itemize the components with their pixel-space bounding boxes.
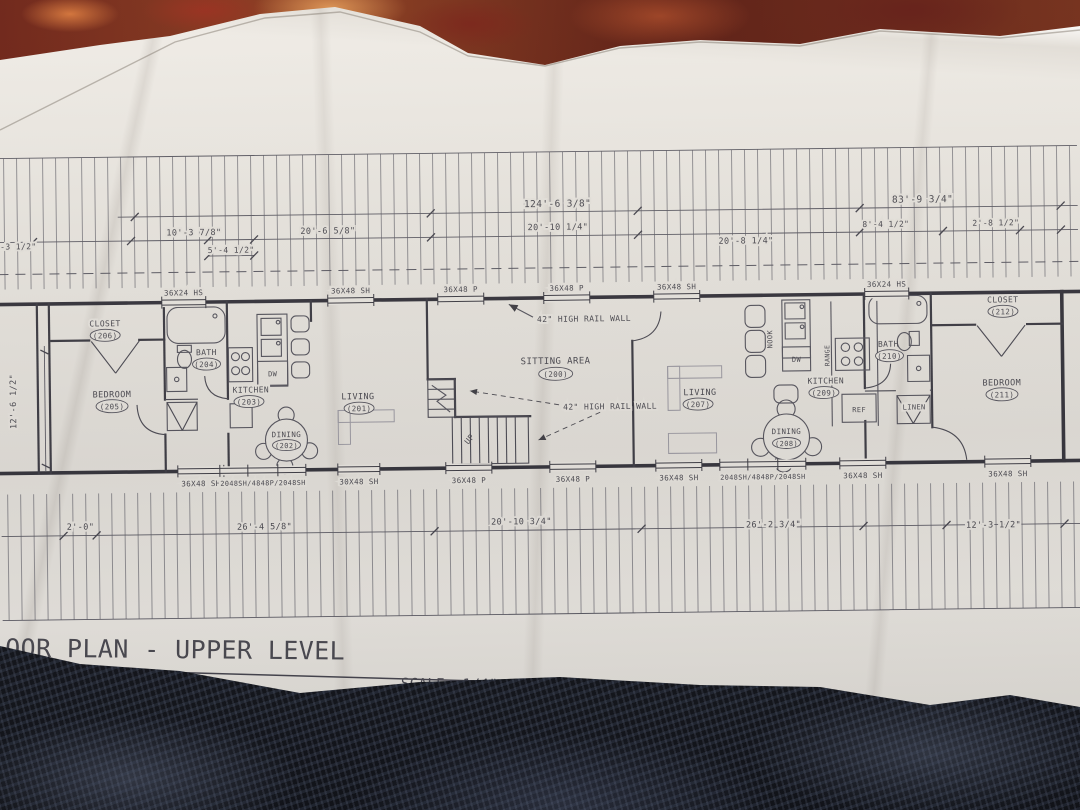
range-icon [228,348,252,382]
room-num-dining-208: (208) [775,440,798,448]
dim-top: 8'-4 1/2" [862,219,909,229]
deck-hatch-top [0,145,1079,289]
linen-label: LINEN [903,403,926,411]
room-name-dining-208: DINING [772,427,802,436]
dim-overall-right: 83'-9 3/4" [892,194,953,206]
window [178,465,224,478]
window [220,464,306,477]
dim-left-vertical: 12'-6 1/2" [9,374,20,429]
drawing-tilt-group: 124'-6 3/8" 83'-9 3/4" 10'-3 7/8" 5'-4 1… [0,145,1080,707]
bench-icon [745,330,765,352]
room-num-living-201: (201) [347,404,372,413]
nook-label: NOOK [766,330,774,349]
room-num-dining-202: (202) [275,442,298,450]
closet-206-doors [91,341,139,374]
range-label: RANGE [823,345,831,367]
dim-top: 2'-8 1/2" [972,218,1019,228]
dim-bottom: 12'-3 1/2" [966,520,1021,531]
window-label: 36X48 P [556,474,591,483]
dim-top: 20'-10 1/4" [527,222,588,233]
stairs: UP [428,378,529,464]
room-num-bedroom-205: (205) [100,402,125,411]
dim-top: 20'-8 1/4" [718,236,773,247]
dim-top-cut: -3 1/2" [0,242,37,251]
closet-212-doors [977,325,1025,357]
window-label: 36X48 SH [988,469,1028,478]
sink-icon [907,355,929,381]
room-num-kitchen-209: (209) [812,388,837,397]
round-table-icon [763,414,810,461]
window [656,459,702,472]
dim-top: 10'-3 7/8" [166,228,221,239]
window-label: 30X48 SH [339,477,379,486]
rail-wall-note-1: 42" HIGH RAIL WALL [537,314,631,324]
window-label: 2048SH/4848P/2048SH [720,473,805,482]
dim-bottom: 26'-4 5/8" [237,522,292,533]
dishwasher-label: DW [268,370,278,378]
window [985,455,1031,468]
room-num-bedroom-211: (211) [990,390,1015,399]
room-name-bedroom-205: BEDROOM [93,390,132,400]
room-num-closet-212: (212) [991,307,1016,316]
dim-bottom: 20'-10 3/4" [491,517,552,528]
window-label: 36X48 SH [181,479,221,488]
stool-icon [292,362,310,378]
living-201-furniture [338,410,394,445]
dim-top: 5'-4 1/2" [208,245,255,255]
bench-icon [745,355,765,377]
room-name-dining-202: DINING [272,430,302,439]
stairs-up-label: UP [463,432,477,446]
dim-bottom: 2'-0" [67,522,95,532]
refrigerator-label: REF [852,406,866,414]
nook-kitchen-209-fixtures: NOOK DW RANGE REF [745,299,879,428]
room-name-kitchen-203: KITCHEN [233,385,270,394]
linen-closet [167,402,197,430]
window-label: 36X24 HS [164,288,204,297]
room-name-closet-206: CLOSET [89,319,120,328]
window [654,290,700,303]
window [865,287,909,300]
window [438,293,484,306]
dim-bottom: 26'-2 3/4" [746,520,801,531]
dishwasher-label: DW [792,356,802,364]
room-num-bath-204: (204) [194,360,219,369]
room-num-closet-206: (206) [93,331,118,340]
window [840,457,886,470]
window-label: 36X48 P [452,476,487,485]
room-name-kitchen-209: KITCHEN [807,376,844,385]
sink-icon [167,367,187,391]
deck-hatch-bottom [1,481,1080,620]
counter [782,300,811,358]
room-name-closet-212: CLOSET [987,295,1018,304]
window-label: 36X24 HS [867,280,907,289]
toilet-icon [177,350,191,368]
window [338,463,380,476]
bathtub-icon [167,307,225,344]
room-name-sitting-200: SITTING AREA [521,356,591,367]
room-name-living-201: LIVING [341,392,374,402]
stool-icon [291,316,309,332]
window [720,458,806,471]
room-num-living-207: (207) [686,400,711,409]
window-label: 36X48 SH [657,282,697,291]
dim-overall-left: 124'-6 3/8" [524,198,591,210]
stool-icon [291,339,309,355]
window [328,294,374,307]
window-label: 36X48 SH [659,473,699,482]
dimension-left: 12'-6 1/2" [8,346,50,471]
dim-top: 20'-6 5/8" [300,226,355,237]
window-label: 36X48 SH [331,286,371,295]
window [544,291,590,304]
window-label: 36X48 P [549,283,584,292]
window-label: 36X48 SH [843,471,883,480]
rail-wall-note-2: 42" HIGH RAIL WALL [563,402,657,412]
window-label: 36X48 P [443,285,478,294]
photo-of-floor-plan: 124'-6 3/8" 83'-9 3/4" 10'-3 7/8" 5'-4 1… [0,0,1080,810]
bench-icon [745,305,765,327]
room-name-bath-204: BATH [196,348,217,357]
room-num-kitchen-203: (203) [237,397,262,406]
window [550,460,596,473]
room-num-sitting-200: (200) [543,370,568,379]
room-name-bedroom-211: BEDROOM [982,378,1021,388]
room-name-living-207: LIVING [683,388,716,398]
room-name-bath-210: BATH [878,340,899,349]
room-num-bath-210: (210) [877,352,902,361]
kitchen-203-fixtures: DW [228,314,310,428]
window-label: 2048SH/4848P/2048SH [220,479,305,488]
